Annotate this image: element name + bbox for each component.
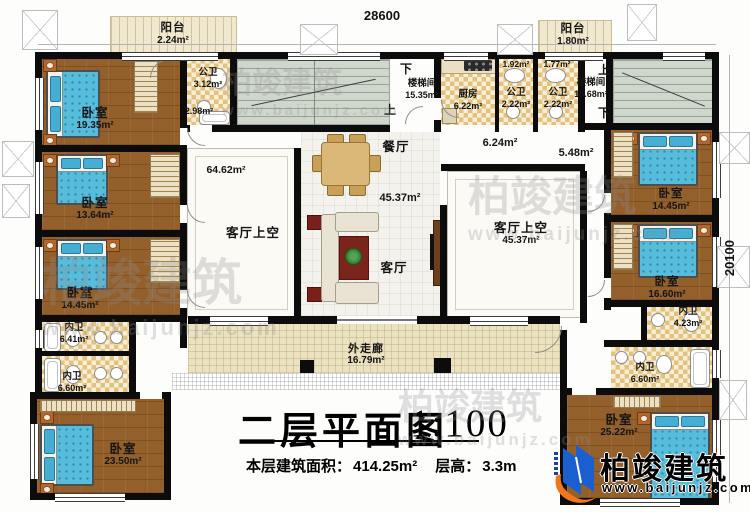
- room-label-bedroom-r3: 卧室25.22m²: [590, 413, 648, 438]
- tv: [430, 234, 434, 270]
- wall: [604, 340, 719, 347]
- room-label-bath-tl-sub: 2.98m²: [181, 106, 217, 116]
- window: [30, 424, 39, 479]
- plan-subtitle: 本层建筑面积：414.25m²层高：3.3m: [246, 455, 518, 476]
- stair-up-label: 上: [384, 101, 396, 118]
- double-bed: [638, 224, 698, 278]
- double-bed: [56, 239, 108, 290]
- wall: [585, 123, 718, 130]
- window: [210, 316, 268, 326]
- wall: [230, 52, 237, 132]
- plant: [345, 248, 362, 265]
- nightstand: [697, 132, 711, 145]
- door-arc: [187, 128, 205, 146]
- door-opening: [434, 98, 441, 120]
- wardrobe: [150, 154, 180, 198]
- door-arc: [588, 195, 605, 212]
- company-logo-icon: [552, 442, 598, 504]
- window: [35, 162, 44, 214]
- stairwell-right: [613, 59, 714, 125]
- double-bed: [638, 132, 698, 186]
- stair-break-line: [622, 73, 705, 107]
- void-left-area: 64.62m²: [202, 165, 250, 177]
- wall: [35, 315, 187, 322]
- height-value: 3.3m: [482, 458, 516, 475]
- door-opening: [140, 392, 162, 399]
- corner-table: [307, 215, 322, 230]
- wardrobe: [150, 239, 180, 283]
- room-label-bedroom-r1: 卧室14.45m²: [644, 188, 698, 212]
- company-url: www.baijunjz.com: [602, 480, 750, 495]
- hall-area-b: 5.48m²: [556, 147, 596, 159]
- floor-plan-canvas: 阳台2.24m² 阳台1.80m² 卧室19.35m² 公卫3.12m² 2.9…: [0, 0, 750, 512]
- wardrobe: [40, 400, 136, 412]
- room-label-dining: 餐厅: [378, 140, 414, 154]
- stair-down-label: 下: [400, 60, 412, 77]
- sink: [110, 367, 123, 380]
- wall: [35, 230, 187, 237]
- wall: [129, 315, 136, 398]
- height-label: 层高：: [435, 458, 480, 475]
- column: [300, 360, 314, 373]
- door-opening: [604, 278, 611, 298]
- chair: [369, 155, 381, 172]
- paving-apron: [172, 373, 560, 390]
- room-label-balcony-tl: 阳台2.24m²: [146, 22, 200, 46]
- pbath2-vestibule-area: 1.77m²: [541, 60, 573, 70]
- wall: [604, 215, 719, 222]
- wall: [294, 148, 301, 323]
- company-logo: 柏竣建筑 www.baijunjz.com: [552, 442, 748, 508]
- room-label-bath-l2: 内卫6.60m²: [46, 372, 98, 393]
- column: [434, 358, 451, 373]
- window: [35, 78, 44, 130]
- room-label-bath-r2: 内卫6.60m²: [621, 363, 669, 384]
- stair-right-area: 15.68m²: [568, 89, 614, 99]
- ac-unit-box: [2, 141, 34, 177]
- wardrobe: [613, 132, 633, 178]
- window: [444, 52, 488, 61]
- wall: [604, 300, 719, 307]
- wall: [164, 397, 171, 500]
- bathtub: [690, 349, 710, 388]
- void-left-name: 客厅上空: [222, 226, 284, 240]
- stair-left-name: 楼梯间: [390, 79, 454, 90]
- nightstand: [697, 224, 711, 237]
- room-label-bath-r1: 内卫4.23m²: [665, 307, 711, 328]
- window: [35, 247, 44, 299]
- room-label-bath-l1: 内卫6.41m²: [48, 323, 100, 344]
- wall: [35, 145, 187, 152]
- nightstand: [43, 154, 57, 167]
- door-opening: [180, 205, 187, 223]
- door-opening: [572, 388, 596, 395]
- room-label-bedroom-l4: 卧室23.50m²: [88, 442, 158, 467]
- title-underline: [241, 440, 479, 442]
- room-label-corridor: 外走廊16.79m²: [336, 343, 396, 367]
- stove: [464, 60, 492, 71]
- door-opening: [180, 290, 187, 308]
- sink: [651, 313, 665, 327]
- area-label: 本层建筑面积：: [246, 458, 351, 475]
- window: [122, 52, 218, 61]
- ac-unit-box: [627, 4, 657, 41]
- room-label-bath-tl: 公卫3.12m²: [185, 68, 231, 89]
- nightstand: [106, 154, 120, 167]
- nightstand: [43, 59, 57, 72]
- stair-up-label: 上: [598, 61, 610, 78]
- room-label-kitchen: 厨房6.22m²: [450, 90, 486, 111]
- void-right-label: 客厅上空45.37m²: [486, 221, 556, 246]
- room-label-bedroom-l1: 卧室19.35m²: [60, 106, 130, 131]
- door-opening: [180, 128, 187, 145]
- wall: [441, 164, 585, 171]
- ac-unit-box: [719, 380, 747, 420]
- stair-left-area: 15.35m²: [388, 90, 456, 100]
- sink: [110, 331, 123, 344]
- stair-divider: [314, 60, 315, 126]
- double-bed: [40, 424, 94, 486]
- door-opening: [604, 310, 611, 330]
- nightstand: [40, 411, 54, 424]
- room-label-bedroom-l2: 卧室13.64m²: [60, 196, 130, 221]
- room-label-living: 客厅: [376, 261, 412, 275]
- toilet: [545, 68, 566, 83]
- wall: [440, 205, 447, 323]
- door-opening: [604, 193, 611, 213]
- window: [35, 330, 44, 348]
- hall-main-area: 45.37m²: [375, 192, 425, 204]
- nightstand: [106, 239, 120, 252]
- ac-unit-box: [300, 24, 338, 55]
- dimension-right: 20100: [722, 240, 737, 276]
- stair-right-name: 楼梯间: [570, 78, 612, 89]
- area-value: 414.25m²: [353, 458, 417, 475]
- pbath1-vestibule-area: 1.92m²: [500, 60, 532, 70]
- ac-unit-box: [2, 184, 30, 218]
- stairwell-left: [237, 59, 390, 127]
- dimension-top: 28600: [330, 8, 434, 23]
- sliding-door: [337, 319, 417, 321]
- wardrobe: [613, 396, 661, 408]
- dimension-line-right: [729, 55, 730, 503]
- wall: [580, 171, 587, 323]
- dimension-line-top: [38, 44, 716, 45]
- window: [663, 52, 705, 61]
- wardrobe: [613, 224, 633, 270]
- room-label-bedroom-l3: 卧室14.45m²: [45, 286, 115, 311]
- door-opening: [390, 125, 434, 132]
- ac-unit-box: [497, 24, 533, 55]
- window: [470, 316, 528, 326]
- wall: [641, 307, 647, 340]
- room-label-bedroom-r2: 卧室16.60m²: [638, 276, 696, 300]
- nightstand: [43, 239, 57, 252]
- window: [712, 350, 721, 378]
- wall: [35, 351, 136, 356]
- dining-table: [321, 142, 370, 186]
- stair-down-label: 下: [598, 104, 610, 121]
- hall-area-a: 6.24m²: [480, 137, 520, 149]
- window: [55, 493, 125, 502]
- sofa: [335, 282, 379, 304]
- door-arc: [405, 106, 423, 124]
- toilet: [504, 68, 525, 83]
- wall: [533, 59, 538, 132]
- ac-unit-box: [719, 132, 750, 164]
- sofa: [335, 212, 379, 232]
- door-arc: [588, 280, 605, 297]
- corner-table: [307, 287, 322, 302]
- room-label-pbath1: 公卫2.22m²: [499, 88, 533, 109]
